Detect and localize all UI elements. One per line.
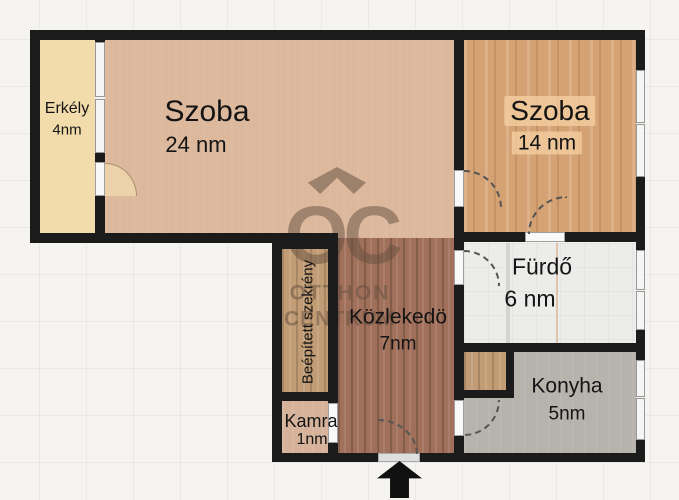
- wall-wardrobe-right: [328, 249, 338, 403]
- entrance-arrow-icon: [377, 461, 422, 498]
- room-name-erkely: Erkély: [45, 101, 89, 117]
- wall-bottom-upper-left: [30, 233, 282, 243]
- room-name-szoba14: Szoba: [504, 96, 595, 126]
- wall-closet-right: [506, 351, 514, 398]
- wall-lower-left: [272, 233, 282, 462]
- wall-bathroom-bottom: [454, 343, 645, 352]
- kitchen-closet-floor: [464, 351, 506, 390]
- wall-balcony-seg2: [95, 153, 105, 162]
- room-name-kamra: Kamra: [284, 412, 337, 430]
- wall-room14-bottom-seg2: [565, 232, 645, 242]
- room-area-erkely: 4nm: [52, 123, 81, 138]
- wall-wardrobe-pantry-divider: [282, 392, 328, 401]
- wall-mid-seg1: [454, 30, 464, 170]
- wall-bottom-seg1: [272, 453, 378, 462]
- wall-pantry-right-seg: [328, 443, 338, 453]
- room-area-szoba14: 14 nm: [512, 132, 582, 155]
- wall-mid-seg4: [454, 436, 464, 462]
- kitchen-door: [454, 400, 464, 436]
- room-name-szekreny: Beépített szekrény: [301, 260, 316, 384]
- wall-room14-bottom-seg1: [454, 232, 525, 242]
- bathroom-window-2: [636, 291, 645, 330]
- wall-balcony-seg3: [95, 196, 105, 233]
- room-area-szoba24: 24 nm: [165, 134, 226, 156]
- room14-window-1: [636, 70, 645, 123]
- room-area-furdo: 6 nm: [504, 288, 555, 311]
- balcony-window-2: [95, 99, 105, 153]
- kitchen-window-1: [636, 360, 645, 397]
- wall-left: [30, 30, 40, 243]
- room-name-furdo: Fürdő: [512, 256, 572, 279]
- room-area-konyha: 5nm: [549, 405, 586, 424]
- room-name-konyha: Konyha: [531, 376, 602, 397]
- balcony-window-1: [95, 42, 105, 97]
- room24-room14-door: [454, 170, 464, 207]
- wall-top: [30, 30, 645, 40]
- wall-wardrobe-top: [282, 233, 338, 249]
- wall-right-seg1: [636, 30, 645, 70]
- wall-closet-bottom: [454, 390, 514, 398]
- room14-window-2: [636, 124, 645, 177]
- wall-balcony-seg1: [95, 30, 105, 42]
- bathroom-door: [454, 250, 464, 285]
- floorplan-canvas: OC OTTHON CENTRUM: [0, 0, 679, 500]
- room-name-szoba24: Szoba: [164, 97, 249, 127]
- room-24-floor: [105, 40, 454, 238]
- kitchen-window-2: [636, 398, 645, 440]
- bathroom-window-1: [636, 250, 645, 290]
- room-area-kozlekedo: 7nm: [380, 335, 417, 354]
- room-area-kamra: 1nm: [296, 432, 327, 448]
- balcony-door: [95, 162, 105, 196]
- wall-mid-seg2: [454, 207, 464, 250]
- room-name-kozlekedo: Közlekedö: [349, 307, 447, 328]
